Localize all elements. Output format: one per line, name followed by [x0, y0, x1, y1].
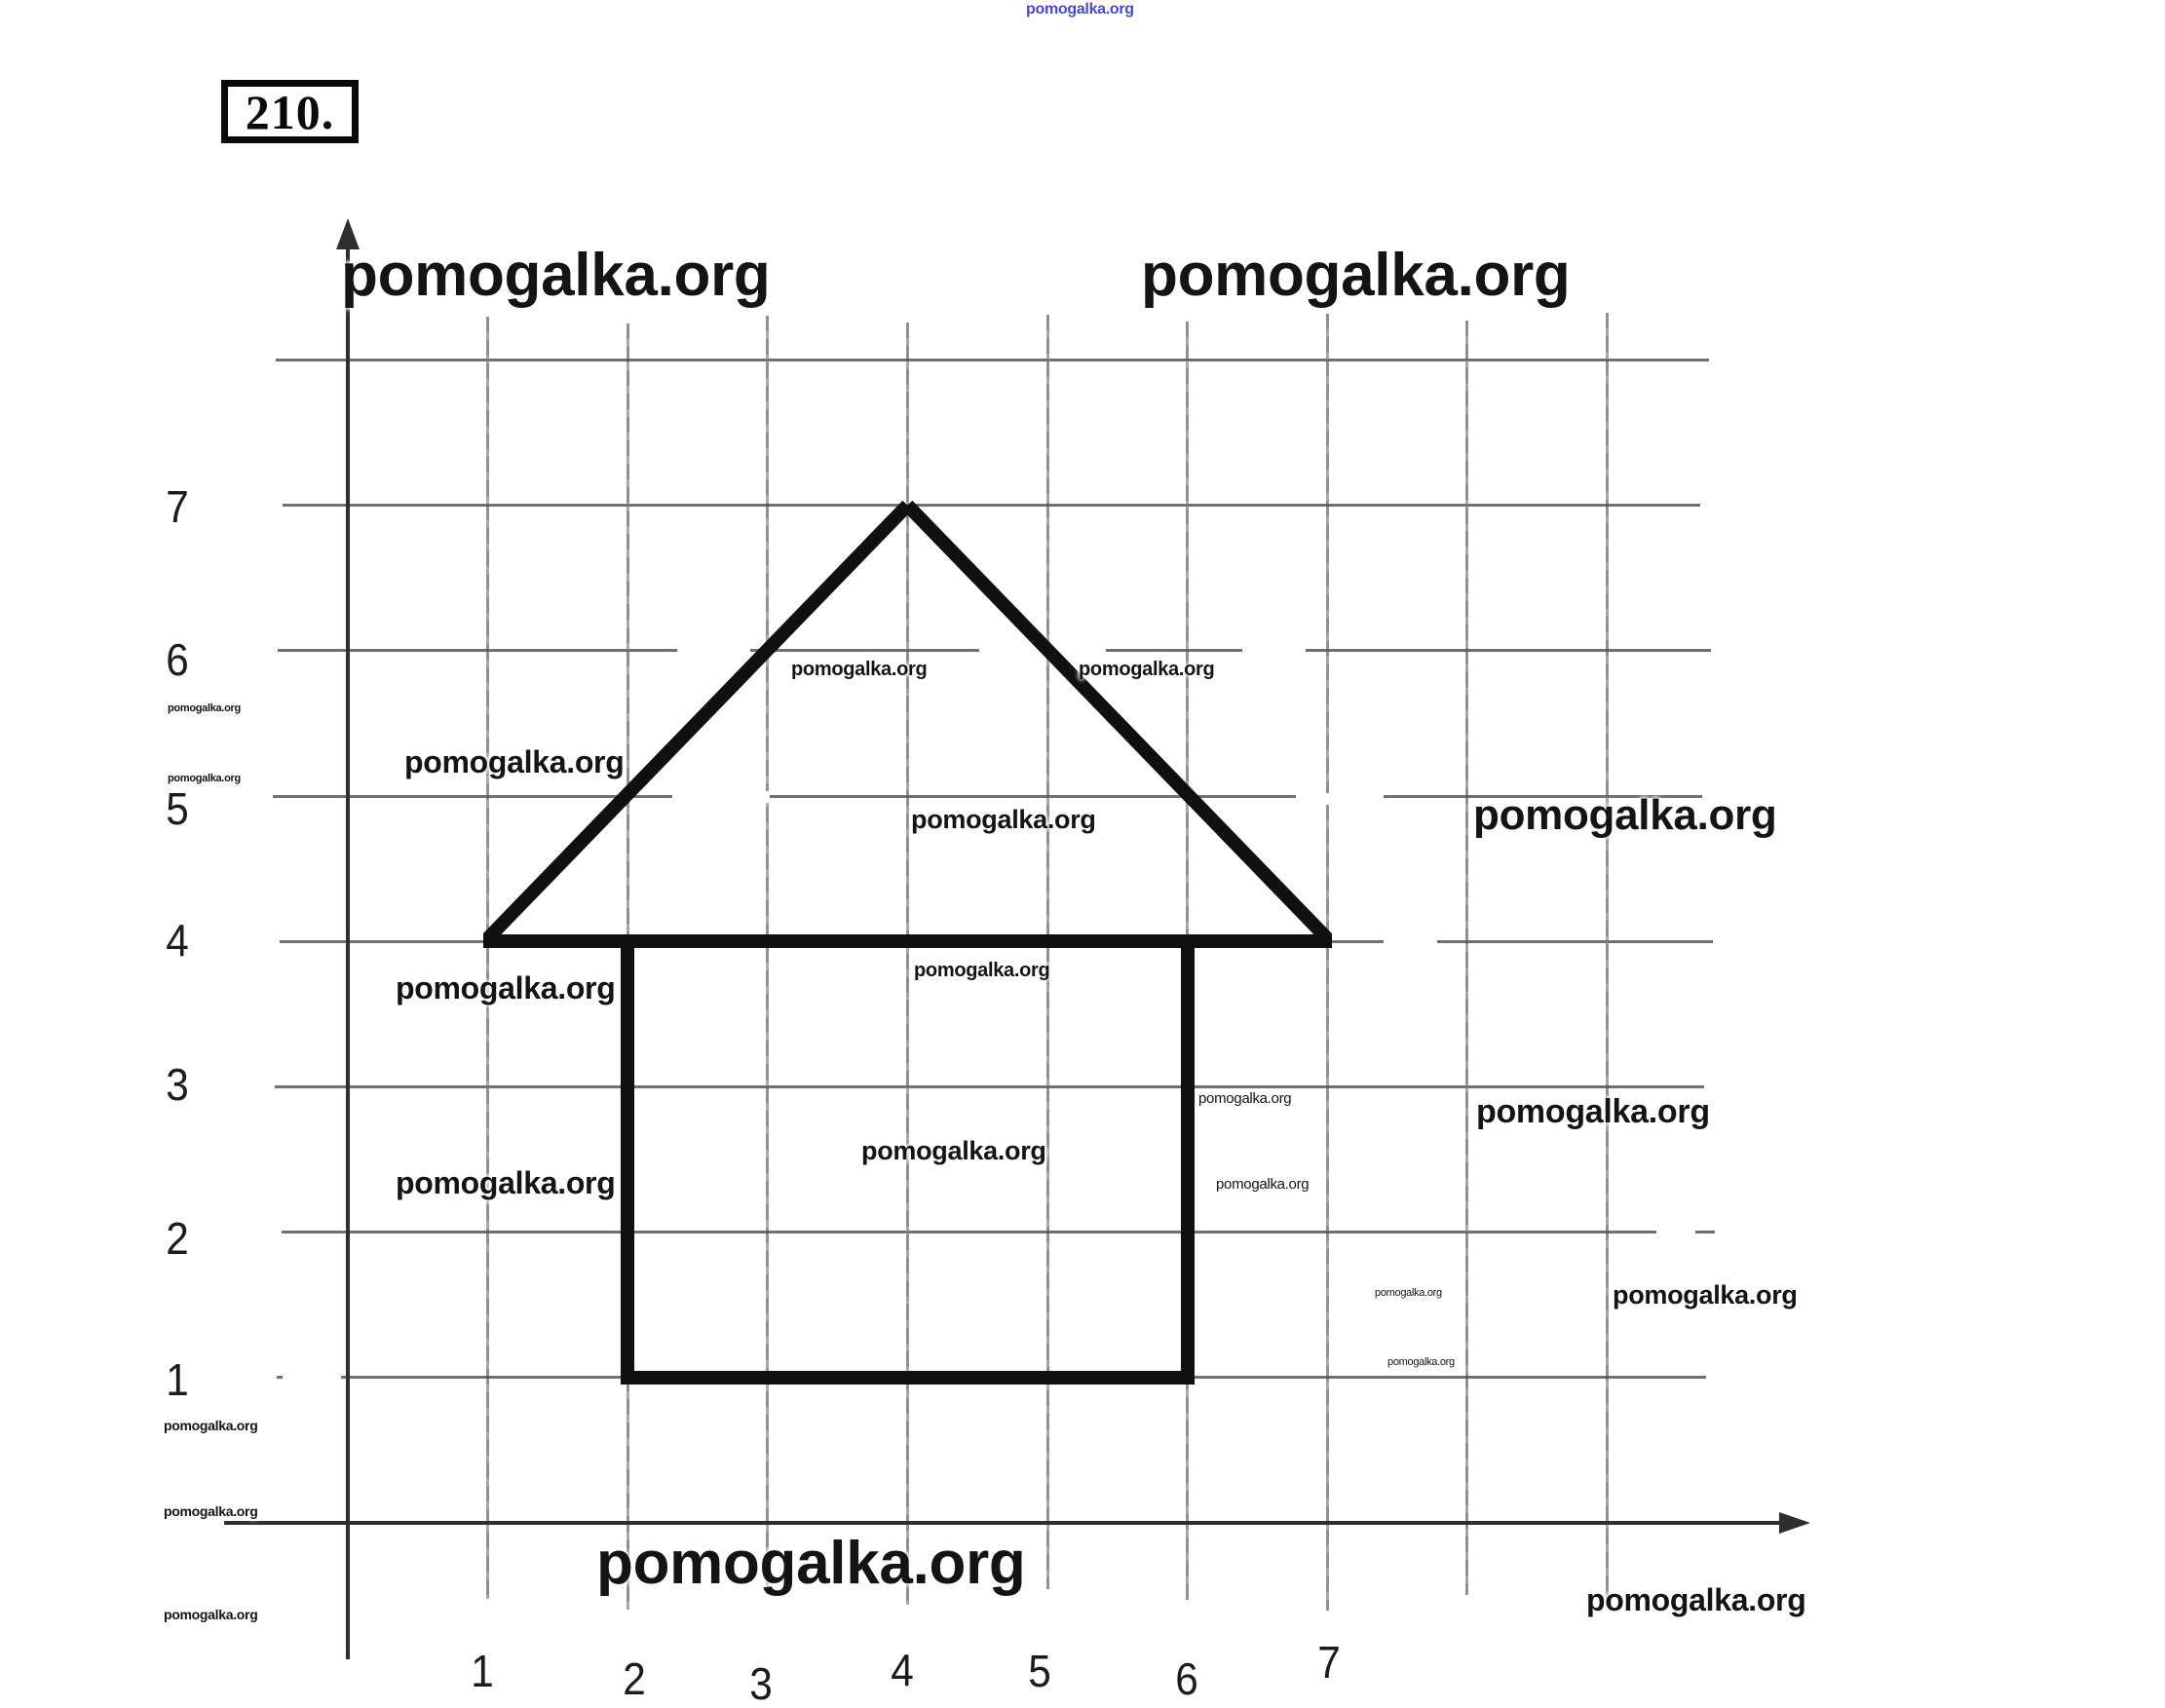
y-axis-label: 5	[158, 786, 197, 831]
y-axis-label: 3	[158, 1062, 197, 1107]
x-axis-label: 7	[1310, 1640, 1348, 1685]
roof-right-slope	[907, 506, 1327, 939]
x-axis-label: 4	[883, 1648, 922, 1692]
watermark-text: pomogalka.org	[1079, 660, 1214, 679]
roof-left-slope	[488, 506, 908, 939]
watermark-text: pomogalka.org	[168, 703, 241, 714]
x-axis-label: 6	[1166, 1656, 1205, 1701]
x-axis-label: 1	[462, 1649, 501, 1693]
x-axis-label: 2	[615, 1656, 654, 1701]
watermark-text: pomogalka.org	[164, 1608, 257, 1621]
x-axis-label: 5	[1020, 1649, 1059, 1693]
watermark-text: pomogalka.org	[1141, 246, 1570, 306]
watermark-text: pomogalka.org	[164, 1504, 257, 1518]
watermark-text: pomogalka.org	[596, 1534, 1025, 1594]
watermark-text: pomogalka.org	[396, 972, 615, 1004]
y-axis-label: 6	[158, 637, 197, 682]
y-axis-label: 4	[158, 918, 197, 963]
watermark-text: pomogalka.org	[1476, 1095, 1710, 1128]
watermark-text: pomogalka.org	[341, 246, 770, 306]
watermark-text: pomogalka.org	[1586, 1584, 1805, 1615]
watermark-text: pomogalka.org	[1613, 1282, 1798, 1309]
watermark-text: pomogalka.org	[1198, 1091, 1291, 1106]
watermark-text: pomogalka.org	[914, 961, 1049, 980]
watermark-text: pomogalka.org	[911, 807, 1096, 833]
house-roof-slopes	[0, 0, 2165, 1708]
watermark-text: pomogalka.org	[791, 660, 927, 679]
watermark-text: pomogalka.org	[1026, 2, 1134, 18]
watermark-text: pomogalka.org	[396, 1167, 615, 1198]
y-axis-label: 7	[158, 484, 197, 529]
y-axis-label: 1	[158, 1357, 197, 1402]
watermark-text: pomogalka.org	[1473, 794, 1776, 837]
x-axis-label: 3	[741, 1661, 780, 1706]
textbook-scan-page: 210. 1234567 1234567 pomogalka.orgpomoga…	[0, 0, 2165, 1708]
watermark-text: pomogalka.org	[1216, 1177, 1309, 1192]
watermark-text: pomogalka.org	[168, 774, 241, 784]
watermark-text: pomogalka.org	[404, 746, 624, 778]
watermark-text: pomogalka.org	[1387, 1357, 1455, 1368]
watermark-text: pomogalka.org	[164, 1419, 257, 1432]
watermark-text: pomogalka.org	[1375, 1288, 1442, 1299]
y-axis-label: 2	[158, 1216, 197, 1261]
watermark-text: pomogalka.org	[861, 1138, 1046, 1164]
